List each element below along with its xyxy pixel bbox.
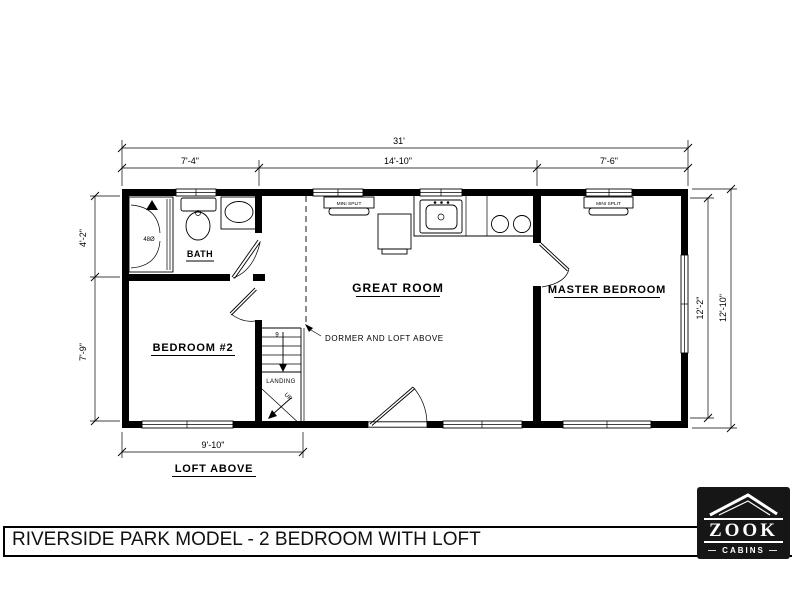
loft-above-label: LOFT ABOVE — [175, 463, 253, 475]
floor-plan-sheet: 48Ø — [0, 0, 792, 612]
mini-split-label: MINI SPLIT — [337, 201, 362, 207]
window-master-right — [681, 255, 688, 353]
window-bedroom2 — [142, 421, 233, 428]
kitchen — [378, 196, 533, 254]
dim-right-outer: 12'-10" — [718, 294, 728, 322]
shower-size-label: 48Ø — [143, 237, 155, 243]
range-burners — [492, 216, 531, 233]
stair-riser-count: 9 — [275, 333, 279, 339]
sheet-title: RIVERSIDE PARK MODEL - 2 BEDROOM WITH LO… — [12, 529, 481, 551]
shower-head-icon — [146, 200, 158, 210]
dim-overall-width: 31' — [393, 136, 405, 146]
dimensions: 31' 7'-4" 14'-10" 7'-6" 4'-2" 7'-9" — [78, 136, 737, 458]
mini-split-master: MINI SPLIT — [584, 197, 633, 215]
stairs: 9 LANDING UP — [262, 328, 304, 426]
dim-left-lower: 7'-9" — [78, 343, 88, 361]
vanity-sink — [221, 197, 258, 229]
logo-name: ZOOK — [704, 518, 783, 543]
bath-label: BATH — [187, 249, 213, 259]
dim-top-left: 7'-4" — [181, 156, 199, 166]
window-great-room-bottom — [443, 421, 522, 428]
dim-top-right: 7'-6" — [600, 156, 618, 166]
bath-door — [232, 240, 261, 279]
window-bath — [176, 189, 216, 196]
landing-label: LANDING — [266, 379, 295, 385]
master-door — [540, 243, 570, 287]
room-labels: GREAT ROOM MASTER BEDROOM BEDROOM #2 BAT… — [151, 249, 666, 477]
zook-cabins-logo: ZOOK — CABINS — — [697, 487, 790, 559]
bedroom2-label: BEDROOM #2 — [153, 342, 234, 354]
windows — [142, 189, 688, 428]
toilet — [181, 198, 216, 240]
shower: 48Ø — [129, 197, 173, 272]
title-bar-top-line — [3, 526, 697, 528]
dim-right-inner: 12'-2" — [695, 297, 705, 320]
window-kitchen — [420, 189, 462, 196]
dim-bottom-left: 9'-10" — [202, 440, 225, 450]
refrigerator — [378, 214, 411, 254]
kitchen-sink — [420, 200, 462, 233]
cabin-roof-icon — [707, 491, 781, 517]
window-great-room-top — [313, 189, 363, 196]
entry-door — [368, 387, 427, 428]
kitchen-counter — [414, 196, 533, 236]
stair-down-arrow-icon — [279, 364, 287, 372]
logo-subtitle: — CABINS — — [708, 546, 779, 555]
dim-top-middle: 14'-10" — [384, 156, 412, 166]
dim-left-upper: 4'-2" — [78, 229, 88, 247]
bedroom2-door — [230, 288, 257, 321]
mini-split-great-room: MINI SPLIT — [324, 197, 374, 215]
master-bedroom-label: MASTER BEDROOM — [548, 284, 666, 296]
great-room-label: GREAT ROOM — [352, 281, 444, 295]
title-bar-left-line — [3, 526, 5, 556]
window-master-bottom — [563, 421, 651, 428]
title-bar-bottom-line — [3, 555, 792, 557]
dormer-label: DORMER AND LOFT ABOVE — [325, 334, 444, 343]
stair-up-label: UP — [283, 392, 293, 402]
dormer-note: DORMER AND LOFT ABOVE — [305, 196, 444, 343]
mini-split-label: MINI SPLIT — [596, 201, 621, 207]
floor-plan-drawing: 48Ø — [0, 0, 792, 612]
window-master-top — [586, 189, 632, 196]
walls — [122, 189, 688, 428]
